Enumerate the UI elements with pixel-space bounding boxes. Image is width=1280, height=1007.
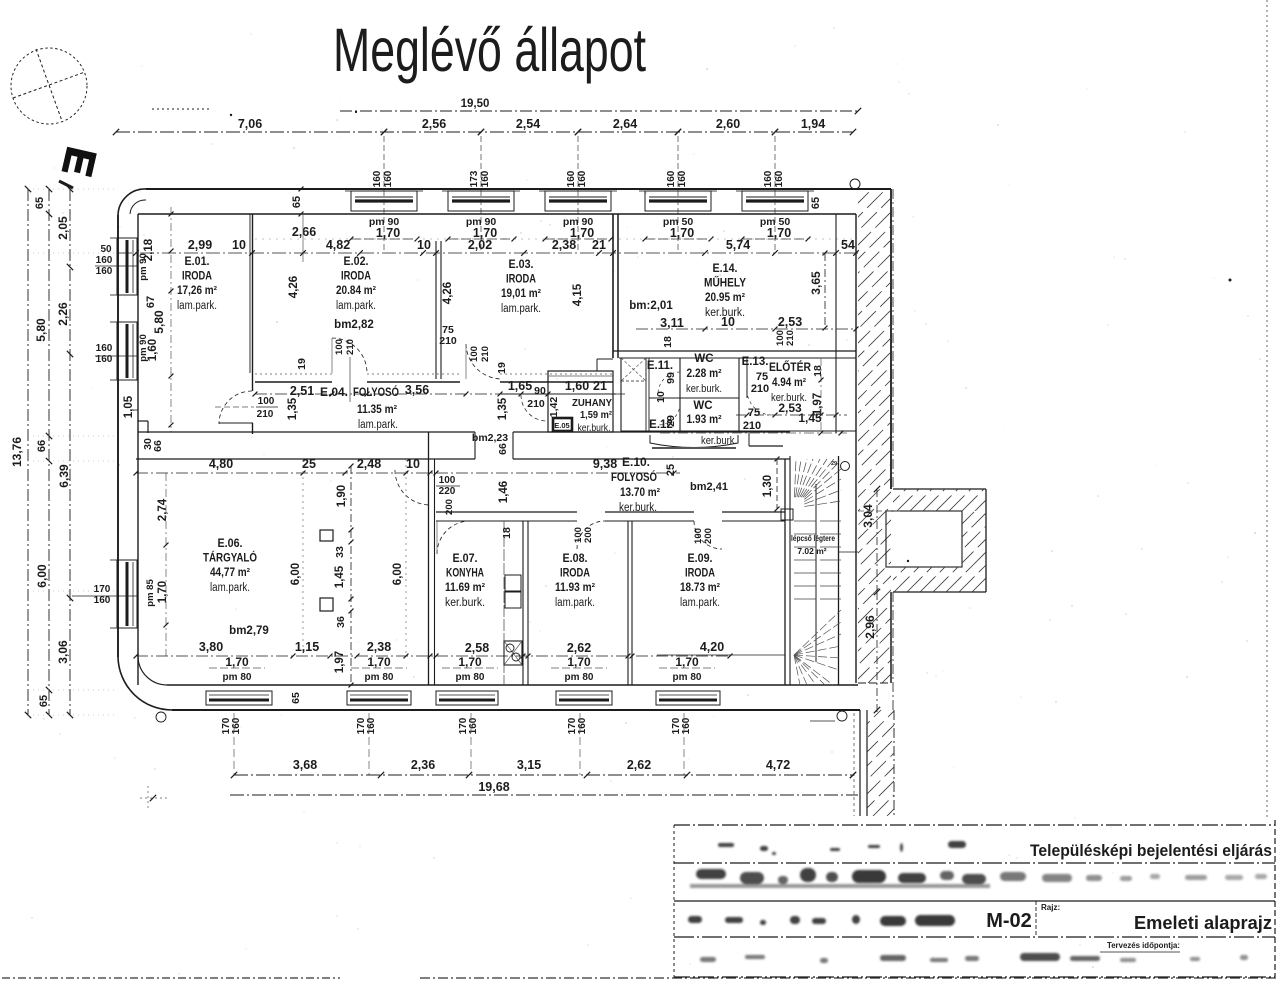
svg-text:E.08.: E.08.	[563, 551, 588, 565]
svg-text:19: 19	[296, 358, 308, 370]
svg-text:1,70: 1,70	[367, 655, 391, 669]
svg-text:173: 173	[469, 170, 480, 187]
svg-text:E.07.: E.07.	[453, 551, 478, 565]
svg-text:pm 80: pm 80	[565, 672, 594, 683]
svg-text:ker.burk.: ker.burk.	[445, 597, 485, 609]
svg-text:1,05: 1,05	[123, 395, 135, 418]
svg-text:25: 25	[665, 464, 677, 476]
svg-text:1,70: 1,70	[157, 581, 169, 603]
svg-text:2,38: 2,38	[552, 238, 576, 252]
svg-text:210: 210	[480, 346, 491, 362]
svg-text:5,74: 5,74	[726, 238, 750, 252]
svg-text:3,56: 3,56	[405, 383, 429, 397]
svg-text:4,15: 4,15	[572, 283, 584, 306]
svg-text:2,18: 2,18	[143, 238, 155, 261]
svg-text:1,94: 1,94	[801, 117, 825, 131]
svg-text:13.70 m²: 13.70 m²	[620, 487, 660, 499]
svg-text:E.09.: E.09.	[688, 551, 713, 565]
svg-text:lam.park.: lam.park.	[177, 300, 217, 312]
svg-text:160: 160	[96, 255, 113, 266]
svg-text:bm:2,01: bm:2,01	[629, 300, 673, 312]
svg-text:210: 210	[257, 409, 274, 420]
svg-text:IRODA: IRODA	[560, 566, 590, 580]
svg-text:160: 160	[366, 717, 377, 734]
svg-text:lam.park.: lam.park.	[680, 597, 720, 609]
svg-text:160: 160	[480, 170, 491, 187]
svg-text:2,60: 2,60	[716, 117, 740, 131]
svg-text:3,80: 3,80	[199, 640, 223, 654]
svg-text:1,15: 1,15	[295, 640, 319, 654]
svg-text:65: 65	[38, 695, 50, 707]
svg-text:pm 80: pm 80	[365, 672, 394, 683]
svg-text:25: 25	[302, 457, 316, 471]
svg-text:KONYHA: KONYHA	[446, 566, 484, 580]
svg-text:E.10.: E.10.	[622, 455, 650, 469]
svg-text:19,68: 19,68	[478, 780, 509, 794]
svg-text:75: 75	[756, 371, 768, 383]
svg-text:54: 54	[841, 238, 855, 252]
svg-text:210: 210	[439, 335, 457, 347]
svg-text:20.95 m²: 20.95 m²	[705, 292, 745, 304]
svg-text:2,51: 2,51	[290, 384, 314, 398]
svg-text:6,00: 6,00	[392, 563, 404, 585]
svg-text:2,36: 2,36	[411, 758, 435, 772]
svg-text:100: 100	[439, 475, 456, 486]
svg-text:19,01 m²: 19,01 m²	[501, 288, 541, 300]
svg-text:1,70: 1,70	[458, 655, 482, 669]
svg-text:2,96: 2,96	[863, 615, 877, 639]
svg-text:20.84 m²: 20.84 m²	[336, 285, 376, 297]
svg-text:29: 29	[831, 461, 837, 467]
svg-text:50: 50	[100, 244, 112, 255]
svg-text:1,30: 1,30	[762, 475, 774, 497]
svg-text:1,35: 1,35	[287, 397, 299, 420]
svg-text:33: 33	[334, 546, 346, 558]
svg-text:bm2,23: bm2,23	[472, 432, 508, 444]
svg-text:5,80: 5,80	[152, 310, 166, 334]
svg-text:bm2,79: bm2,79	[229, 625, 269, 637]
svg-text:19: 19	[496, 362, 508, 374]
svg-text:1,45: 1,45	[334, 565, 346, 588]
svg-text:4,72: 4,72	[766, 758, 790, 772]
svg-text:lam.park.: lam.park.	[555, 597, 595, 609]
svg-text:160: 160	[96, 343, 113, 354]
svg-text:2,66: 2,66	[292, 225, 316, 239]
svg-text:1.93 m²: 1.93 m²	[687, 414, 722, 426]
svg-text:160: 160	[383, 170, 394, 187]
svg-text:1,46: 1,46	[498, 481, 510, 503]
svg-text:160: 160	[566, 170, 577, 187]
svg-text:170: 170	[94, 584, 111, 595]
svg-text:E.11.: E.11.	[647, 360, 673, 372]
svg-text:10: 10	[232, 238, 246, 252]
svg-text:66: 66	[152, 440, 164, 452]
svg-text:E.01.: E.01.	[185, 254, 210, 268]
svg-text:1,70: 1,70	[567, 655, 591, 669]
svg-text:ZUHANY: ZUHANY	[572, 397, 612, 409]
svg-text:Rajz:: Rajz:	[1041, 903, 1060, 912]
svg-text:100: 100	[334, 339, 345, 355]
svg-text:2,74: 2,74	[157, 498, 169, 521]
svg-text:18: 18	[812, 365, 824, 377]
svg-text:2,64: 2,64	[613, 117, 637, 131]
svg-text:11.69 m²: 11.69 m²	[445, 582, 485, 594]
svg-text:10: 10	[721, 315, 735, 329]
svg-text:2,56: 2,56	[422, 117, 446, 131]
svg-text:2,05: 2,05	[56, 216, 70, 240]
svg-text:E.02.: E.02.	[344, 254, 369, 268]
svg-text:210: 210	[785, 330, 796, 346]
svg-text:65: 65	[291, 196, 303, 208]
svg-text:TÁRGYALÓ: TÁRGYALÓ	[203, 550, 257, 565]
svg-text:IRODA: IRODA	[506, 272, 536, 286]
svg-text:200: 200	[703, 528, 714, 544]
svg-text:10: 10	[417, 238, 431, 252]
svg-text:160: 160	[468, 717, 479, 734]
svg-text:100: 100	[469, 346, 480, 362]
svg-text:220: 220	[439, 486, 456, 497]
svg-text:160: 160	[231, 717, 242, 734]
svg-text:3,11: 3,11	[660, 316, 684, 330]
svg-text:E.05: E.05	[554, 421, 569, 430]
svg-text:160: 160	[681, 717, 692, 734]
svg-text:2,62: 2,62	[567, 641, 591, 655]
svg-text:36: 36	[335, 616, 347, 628]
svg-text:21: 21	[593, 379, 607, 393]
svg-text:65: 65	[810, 197, 822, 209]
svg-text:4,26: 4,26	[442, 282, 454, 304]
svg-text:210: 210	[527, 398, 545, 410]
svg-text:67: 67	[145, 296, 157, 308]
svg-text:bm2,41: bm2,41	[690, 481, 728, 493]
svg-text:18.73 m²: 18.73 m²	[680, 582, 720, 594]
svg-text:IRODA: IRODA	[182, 269, 212, 283]
svg-text:4,82: 4,82	[326, 238, 350, 252]
svg-text:90: 90	[534, 385, 546, 397]
svg-text:160: 160	[577, 717, 588, 734]
svg-text:6,00: 6,00	[290, 563, 302, 585]
svg-text:160: 160	[96, 266, 113, 277]
svg-text:Emeleti alaprajz: Emeleti alaprajz	[1134, 913, 1272, 933]
svg-text:1,70: 1,70	[225, 655, 249, 669]
svg-text:19,50: 19,50	[461, 98, 490, 110]
svg-text:65: 65	[34, 197, 46, 209]
svg-text:11.93 m²: 11.93 m²	[555, 582, 595, 594]
svg-text:ker.burk.: ker.burk.	[578, 423, 611, 434]
svg-text:pm 80: pm 80	[673, 672, 702, 683]
svg-text:160: 160	[372, 170, 383, 187]
svg-text:100: 100	[258, 396, 275, 407]
svg-text:WC: WC	[693, 400, 712, 412]
svg-text:9,38: 9,38	[593, 457, 617, 471]
svg-text:3,68: 3,68	[293, 758, 317, 772]
svg-text:3,04: 3,04	[861, 504, 875, 528]
svg-text:2,58: 2,58	[465, 641, 489, 655]
svg-text:lam.park.: lam.park.	[358, 419, 398, 431]
svg-text:2,38: 2,38	[367, 640, 391, 654]
svg-text:MŰHELY: MŰHELY	[704, 275, 746, 290]
svg-text:160: 160	[774, 170, 785, 187]
svg-text:E.03.: E.03.	[509, 257, 534, 271]
svg-text:lam.park.: lam.park.	[210, 582, 250, 594]
svg-text:ker.burk.: ker.burk.	[619, 502, 657, 514]
svg-text:2,54: 2,54	[516, 117, 540, 131]
svg-text:ker.burk.: ker.burk.	[701, 435, 737, 447]
svg-text:160: 160	[677, 170, 688, 187]
svg-text:WC: WC	[694, 353, 713, 365]
svg-text:E.06.: E.06.	[218, 536, 243, 550]
svg-text:4,80: 4,80	[209, 457, 233, 471]
svg-text:pm 80: pm 80	[456, 672, 485, 683]
svg-text:160: 160	[666, 170, 677, 187]
svg-text:FOLYOSÓ: FOLYOSÓ	[611, 469, 657, 484]
svg-text:200: 200	[444, 499, 455, 515]
svg-text:2,48: 2,48	[357, 457, 381, 471]
svg-text:5,80: 5,80	[34, 318, 48, 342]
svg-text:44,77 m²: 44,77 m²	[210, 567, 250, 579]
svg-text:210: 210	[345, 339, 356, 355]
svg-text:29: 29	[665, 415, 677, 427]
svg-text:Tervezés időpontja:: Tervezés időpontja:	[1107, 940, 1180, 950]
svg-text:4,20: 4,20	[700, 640, 724, 654]
svg-text:2,53: 2,53	[778, 315, 802, 329]
svg-text:1,60: 1,60	[565, 379, 589, 393]
svg-text:bm2,82: bm2,82	[334, 319, 374, 331]
svg-text:66: 66	[36, 440, 48, 452]
svg-text:10: 10	[406, 457, 420, 471]
svg-text:10: 10	[655, 391, 667, 403]
svg-text:7.02 m²: 7.02 m²	[797, 546, 826, 556]
svg-text:160: 160	[94, 595, 111, 606]
svg-text:lam.park.: lam.park.	[501, 303, 541, 315]
svg-text:E.13.: E.13.	[742, 356, 769, 368]
svg-text:18: 18	[662, 336, 674, 348]
svg-text:1,70: 1,70	[767, 226, 791, 240]
svg-text:7,06: 7,06	[238, 117, 262, 131]
svg-text:210: 210	[751, 383, 769, 395]
svg-text:1,97: 1,97	[334, 651, 346, 673]
svg-text:1,42: 1,42	[548, 397, 560, 418]
svg-text:lam.park.: lam.park.	[336, 300, 376, 312]
svg-text:3,65: 3,65	[809, 271, 823, 295]
svg-text:200: 200	[583, 527, 594, 543]
svg-text:2.28 m²: 2.28 m²	[687, 368, 722, 380]
svg-text:1,90: 1,90	[336, 485, 348, 507]
svg-text:1,70: 1,70	[675, 655, 699, 669]
svg-text:17,26 m²: 17,26 m²	[177, 285, 217, 297]
svg-text:13,76: 13,76	[10, 437, 24, 467]
svg-text:3,15: 3,15	[517, 758, 541, 772]
svg-text:1,70: 1,70	[670, 226, 694, 240]
svg-text:E.14.: E.14.	[713, 261, 738, 275]
svg-text:1,59 m²: 1,59 m²	[580, 409, 612, 421]
svg-text:21: 21	[592, 238, 606, 252]
svg-text:2,62: 2,62	[627, 758, 651, 772]
svg-text:IRODA: IRODA	[341, 269, 371, 283]
svg-text:pm 85: pm 85	[145, 579, 156, 607]
svg-text:IRODA: IRODA	[685, 566, 715, 580]
svg-text:1,70: 1,70	[376, 226, 400, 240]
svg-text:FOLYOSÓ: FOLYOSÓ	[353, 384, 399, 399]
svg-text:ELŐTÉR: ELŐTÉR	[769, 361, 812, 374]
svg-text:18: 18	[501, 527, 513, 539]
svg-text:4.94 m²: 4.94 m²	[772, 377, 806, 389]
svg-text:Meglévő állapot: Meglévő állapot	[333, 16, 646, 84]
svg-text:3,06: 3,06	[56, 640, 70, 664]
svg-text:210: 210	[743, 420, 761, 432]
svg-text:2,26: 2,26	[56, 302, 70, 326]
svg-text:6,00: 6,00	[35, 564, 49, 588]
svg-text:160: 160	[763, 170, 774, 187]
svg-text:99: 99	[665, 372, 677, 384]
svg-text:Településképi bejelentési eljá: Településképi bejelentési eljárás	[1030, 841, 1272, 860]
svg-text:66: 66	[497, 443, 509, 455]
svg-text:2,99: 2,99	[188, 238, 212, 252]
svg-text:160: 160	[577, 170, 588, 187]
svg-text:6,39: 6,39	[57, 464, 71, 488]
svg-text:11.35 m²: 11.35 m²	[357, 404, 397, 416]
svg-text:1,97: 1,97	[812, 393, 824, 415]
svg-text:M-02: M-02	[986, 910, 1032, 932]
svg-text:pm 80: pm 80	[223, 672, 252, 683]
svg-text:lépcső légtere: lépcső légtere	[791, 534, 835, 543]
svg-text:1,60: 1,60	[147, 339, 159, 361]
svg-text:ker.burk.: ker.burk.	[686, 383, 722, 395]
svg-text:1,65: 1,65	[508, 379, 532, 393]
svg-text:1,35: 1,35	[497, 397, 509, 420]
svg-text:65: 65	[290, 692, 302, 704]
svg-text:4,26: 4,26	[288, 276, 300, 298]
svg-text:2,02: 2,02	[468, 238, 492, 252]
